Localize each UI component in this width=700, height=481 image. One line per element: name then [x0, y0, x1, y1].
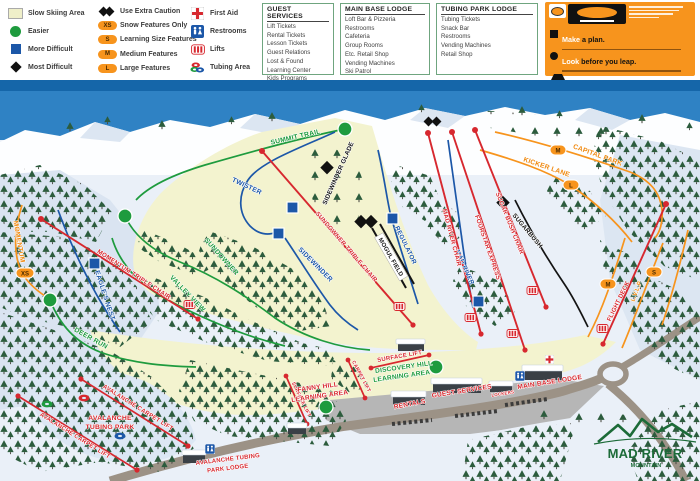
- m-badge: M: [550, 145, 566, 155]
- svg-text:L: L: [569, 184, 573, 190]
- logo-subname: MOUNTAIN: [631, 463, 662, 469]
- tubing-area-icon: [190, 61, 205, 74]
- legend-item-xs-features: XS Snow Features Only: [100, 18, 190, 32]
- svg-text:M: M: [556, 149, 561, 155]
- box-item: Vending Machines: [345, 60, 425, 69]
- discovery-hut: [396, 339, 425, 351]
- green-circle-icon: [8, 25, 23, 38]
- box-item: Restrooms: [345, 25, 425, 34]
- box-item: Cafeteria: [345, 33, 425, 42]
- legend-item-extra-caution: Use Extra Caution: [100, 4, 190, 18]
- m-badge: M: [600, 279, 616, 289]
- legend-item-slow-area: Slow Skiing Area: [8, 4, 100, 22]
- guest-services-box: GUEST SERVICES Lift Tickets Rental Ticke…: [262, 3, 334, 75]
- s-badge-icon: S: [100, 33, 115, 46]
- surface-hut: [287, 423, 307, 434]
- box-item: Etc. Retail Shop: [345, 51, 425, 60]
- lift-icon: [507, 330, 518, 338]
- green-circle-marker: [319, 400, 333, 414]
- legend-label: Lifts: [210, 46, 225, 53]
- box-title: MAIN BASE LODGE: [345, 6, 425, 15]
- lift-icon: [527, 287, 538, 295]
- green-circle-marker: [118, 209, 132, 223]
- restrooms-icon: [190, 25, 205, 38]
- blue-square-marker: [387, 213, 398, 224]
- legend-label: First Aid: [210, 10, 238, 17]
- m-badge-icon: M: [100, 48, 115, 61]
- legend-item-most-difficult: Most Difficult: [8, 58, 100, 76]
- box-item: Snack Bar: [441, 25, 533, 34]
- legend-column-features: Use Extra Caution XS Snow Features Only …: [100, 4, 190, 76]
- l-badge: L: [563, 180, 579, 190]
- blue-square-marker: [287, 202, 298, 213]
- legend-item-lifts: Lifts: [190, 40, 264, 58]
- legend-label: Learning Size Features: [120, 36, 197, 43]
- box-item: Guest Relations: [267, 49, 329, 58]
- legend-item-restrooms: Restrooms: [190, 22, 264, 40]
- box-item: Learning Center: [267, 67, 329, 76]
- svg-text:M: M: [606, 283, 611, 289]
- trail-map-page: Slow Skiing Area Easier More Difficult M…: [0, 0, 700, 481]
- legend-label: Use Extra Caution: [120, 8, 180, 15]
- fine-print: [629, 4, 691, 20]
- legend-column-difficulty: Slow Skiing Area Easier More Difficult M…: [8, 4, 100, 76]
- legend-label: Snow Features Only: [120, 22, 187, 29]
- area-label-tubing-2: TUBING PARK: [86, 424, 135, 431]
- box-item: Lost & Found: [267, 58, 329, 67]
- legend-label: Medium Features: [120, 51, 178, 58]
- svg-text:XS: XS: [21, 272, 29, 278]
- terrain-feature-icon: [550, 30, 558, 38]
- first-aid-icon: [545, 355, 554, 364]
- box-item: Lesson Tickets: [267, 40, 329, 49]
- black-diamond-icon: [8, 61, 23, 74]
- lift-icon: [394, 303, 405, 311]
- legend-item-more-difficult: More Difficult: [8, 40, 100, 58]
- box-title: TUBING PARK LODGE: [441, 6, 533, 15]
- box-item: Restrooms: [441, 33, 533, 42]
- xs-badge-icon: XS: [100, 19, 115, 32]
- blue-square-marker: [273, 228, 284, 239]
- smart-style-logo: [568, 4, 626, 24]
- main-base-lodge-box: MAIN BASE LODGE Loft Bar & Pizzeria Rest…: [340, 3, 430, 75]
- first-aid-icon: [190, 7, 205, 20]
- box-item: Loft Bar & Pizzeria: [345, 16, 425, 25]
- legend-label: Tubing Area: [210, 64, 250, 71]
- legend-item-l-features: L Large Features: [100, 62, 190, 76]
- terrain-feature-icon: [550, 52, 558, 60]
- green-circle-marker: [43, 293, 57, 307]
- box-item: Group Rooms: [345, 42, 425, 51]
- smart-style-mini-logo-icon: [549, 4, 566, 18]
- lifts-icon: [190, 43, 205, 56]
- legend-label: Easier: [28, 28, 49, 35]
- restrooms-icon: [515, 371, 525, 381]
- legend-item-tubing: Tubing Area: [190, 58, 264, 76]
- logo-name: MAD RIVER: [608, 446, 683, 461]
- divider-band: [0, 80, 700, 92]
- box-item: Retail Shop: [441, 51, 533, 60]
- s-badge: S: [646, 267, 662, 277]
- green-circle-marker: [338, 122, 352, 136]
- box-item: Tubing Tickets: [441, 16, 533, 25]
- legend-label: Most Difficult: [28, 64, 72, 71]
- slow-area-swatch-icon: [8, 7, 23, 20]
- lift-icon: [597, 325, 608, 333]
- legend-label: Restrooms: [210, 28, 247, 35]
- area-label-tubing-1: AVALANCHE: [88, 415, 132, 422]
- smart-style-row: Makea plan.: [549, 29, 691, 50]
- legend-item-s-features: S Learning Size Features: [100, 33, 190, 47]
- smart-style-panel: Makea plan. Lookbefore you leap. Easysty…: [545, 2, 695, 76]
- xs-badge: XS: [16, 268, 34, 278]
- trail-map: XS M L M S MOGUL FIELD SUMMIT TRAIL SUND…: [0, 80, 700, 481]
- blue-square-marker: [473, 296, 484, 307]
- box-item: Vending Machines: [441, 42, 533, 51]
- legend-item-m-features: M Medium Features: [100, 47, 190, 61]
- box-item: Rental Tickets: [267, 32, 329, 41]
- double-black-diamond-icon: [100, 5, 115, 18]
- legend-item-first-aid: First Aid: [190, 4, 264, 22]
- box-item: Lift Tickets: [267, 23, 329, 32]
- l-badge-icon: L: [100, 62, 115, 75]
- legend-label: More Difficult: [28, 46, 73, 53]
- box-title: GUEST SERVICES: [267, 6, 329, 22]
- legend-label: Slow Skiing Area: [28, 10, 85, 17]
- legend-label: Large Features: [120, 65, 170, 72]
- restrooms-icon: [205, 444, 215, 454]
- legend-column-services: First Aid Restrooms Lifts: [190, 4, 264, 76]
- legend-item-easier: Easier: [8, 22, 100, 40]
- svg-text:S: S: [652, 271, 656, 277]
- header: Slow Skiing Area Easier More Difficult M…: [0, 0, 700, 80]
- blue-square-icon: [8, 43, 23, 56]
- lift-icon: [465, 314, 476, 322]
- box-item: Ski Patrol: [345, 68, 425, 77]
- legend: Slow Skiing Area Easier More Difficult M…: [8, 4, 264, 76]
- smart-style-row: Lookbefore you leap.: [549, 51, 691, 72]
- blue-square-marker: [89, 258, 100, 269]
- tubing-park-lodge-box: TUBING PARK LODGE Tubing Tickets Snack B…: [436, 3, 538, 75]
